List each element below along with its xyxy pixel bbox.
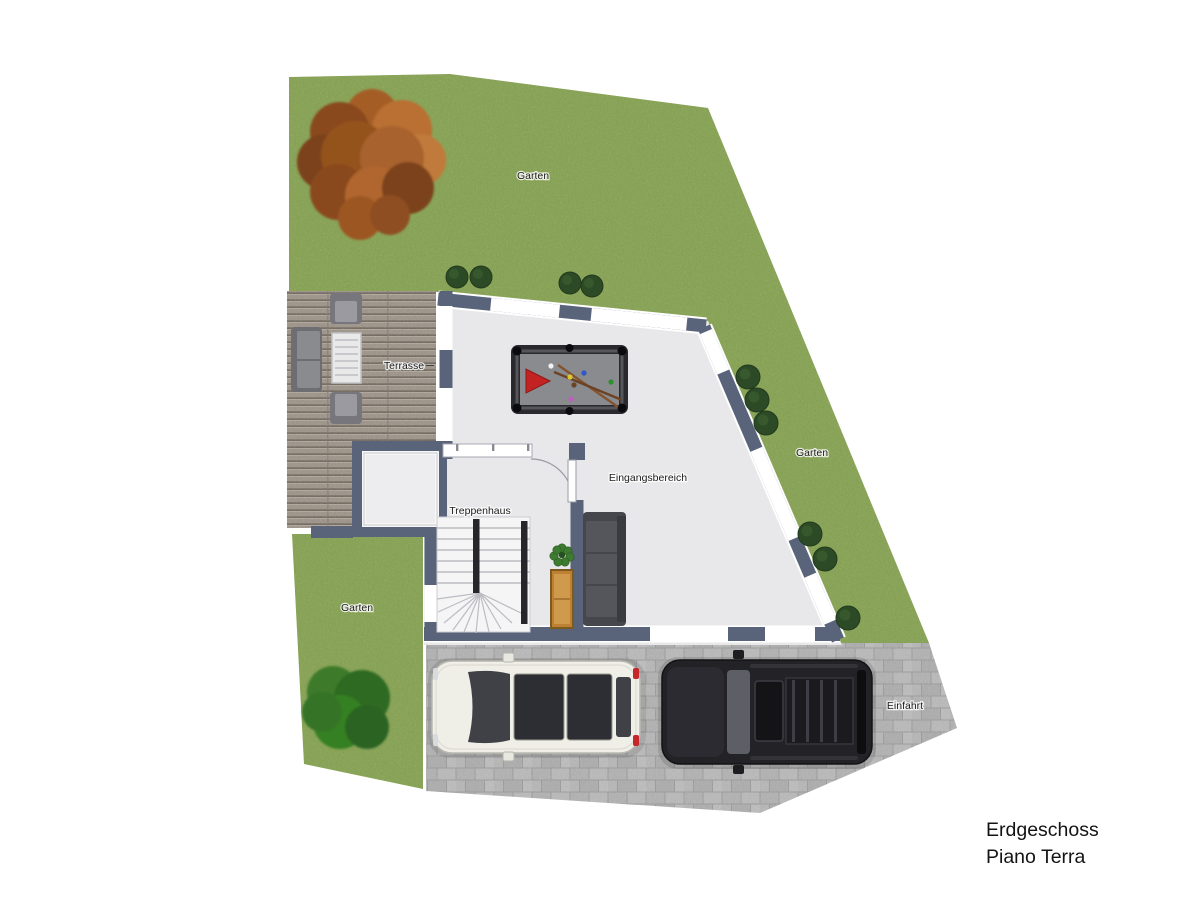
white-car-windshield <box>468 671 510 743</box>
white-car-rear-window <box>616 677 631 737</box>
suv-roof-rail <box>750 756 858 760</box>
staircase-floor <box>437 517 530 632</box>
terrace-armchair-top <box>330 293 362 324</box>
door-jamb-block <box>569 443 585 460</box>
window-tick <box>492 444 494 451</box>
door-leaf <box>568 460 576 502</box>
suv-hood <box>667 667 724 757</box>
white-car <box>428 653 646 761</box>
suv-sunroof <box>755 681 783 741</box>
black-suv <box>658 650 876 774</box>
suv-mirror <box>733 765 744 774</box>
floor-title-line1: Erdgeschoss <box>986 819 1099 841</box>
label-staircase: Treppenhaus <box>449 505 511 517</box>
white-car-mirror <box>503 653 514 662</box>
white-car-roof-glass <box>567 674 612 740</box>
suv-roof-rail <box>750 664 858 668</box>
stair-rail-right <box>521 521 528 624</box>
stair-rail-left <box>473 519 480 593</box>
suv-windshield <box>727 670 750 754</box>
staircase <box>437 517 530 633</box>
suv-rear <box>857 670 866 754</box>
label-garden-right: Garten <box>796 447 828 459</box>
terrace-sofa <box>291 327 322 392</box>
white-car-roof-glass <box>514 674 564 740</box>
entrance-sofa <box>583 512 626 626</box>
floor-title-line2: Piano Terra <box>986 846 1086 868</box>
label-entrance: Eingangsbereich <box>609 472 687 484</box>
storage-room <box>352 441 447 537</box>
white-car-headlight <box>433 734 438 746</box>
deck-wall-stub <box>311 526 353 538</box>
label-terrace: Terrasse <box>384 360 424 372</box>
suv-cargo-area <box>786 678 853 744</box>
storage-room-floor <box>364 453 437 525</box>
window-tick <box>527 444 529 451</box>
garden-left <box>292 534 423 789</box>
floorplan-page: Garten Garten Garten Terrasse Eingangsbe… <box>0 0 1200 900</box>
white-car-taillight <box>633 735 639 746</box>
label-driveway: Einfahrt <box>887 700 923 712</box>
window-tick <box>456 444 458 451</box>
floorplan-drawing: Garten Garten Garten Terrasse Eingangsbe… <box>0 0 1200 900</box>
terrace-armchair-bottom <box>330 392 362 424</box>
white-car-mirror <box>503 752 514 761</box>
white-car-taillight <box>633 668 639 679</box>
pool-table <box>511 344 628 415</box>
garden-left-texture <box>292 534 423 789</box>
suv-mirror <box>733 650 744 659</box>
label-garden-left: Garten <box>341 602 373 614</box>
terrace-table <box>332 333 361 383</box>
white-car-headlight <box>433 668 438 680</box>
cabinet <box>551 570 573 628</box>
label-garden-top: Garten <box>517 170 549 182</box>
